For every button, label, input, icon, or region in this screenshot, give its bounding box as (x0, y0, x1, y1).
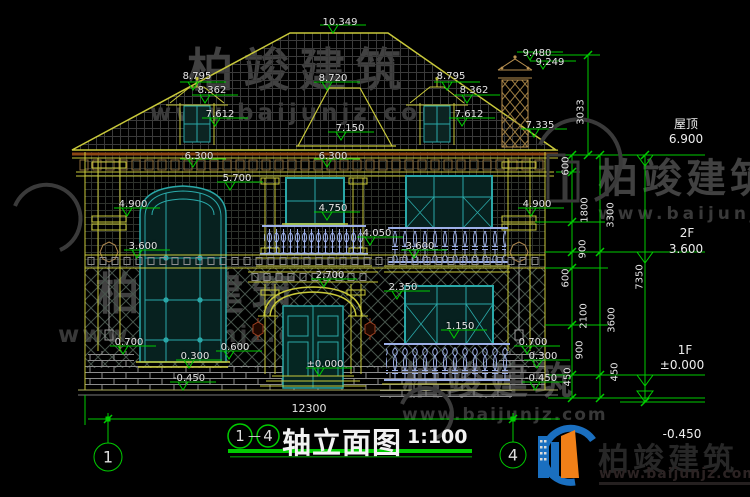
floor-roof-elev: 6.900 (669, 132, 703, 146)
floor-2f-elev: 3.600 (669, 242, 703, 256)
dim-balcony-slab: 4.050 (363, 228, 392, 239)
dim-threshold: ±0.000 (306, 359, 343, 370)
floor-1f-label: 1F (678, 343, 693, 357)
floor-1f-elev: ±0.000 (660, 358, 704, 372)
title-dash: — (248, 429, 261, 444)
dim-ledge-low: 0.600 (221, 342, 250, 353)
floor-roof-label: 屋顶 (674, 115, 698, 132)
drawing-title: 轴立面图 (282, 420, 402, 462)
left-pier-base (88, 351, 134, 390)
dim-dormerL-ridge: 8.795 (183, 71, 212, 82)
dim-sill-left: 0.300 (181, 351, 210, 362)
chain-2100: 2100 (579, 303, 590, 328)
dim-pier-base-right: 0.700 (519, 337, 548, 348)
dim-window-head: 2.350 (389, 282, 418, 293)
chain-450-a: 450 (563, 367, 574, 386)
dim-arch-top: 5.700 (223, 173, 252, 184)
brand-logo-icon (538, 428, 593, 482)
dim-dormerL-eave: 8.362 (198, 85, 227, 96)
dim-ledge-left: 4.900 (119, 199, 148, 210)
axis-bubble-4: 4 (508, 446, 518, 465)
dim-rail-top: 4.750 (319, 203, 348, 214)
chain-900-b: 900 (575, 340, 586, 359)
dim-total-width: 12300 (292, 403, 327, 414)
chain-450-b: 450 (610, 362, 621, 381)
chain-1800: 1800 (580, 197, 591, 222)
dim-center-eave: 7.150 (336, 123, 365, 134)
dim-chimney-cap: 9.249 (536, 57, 565, 68)
axis-bubble-1: 1 (103, 448, 113, 467)
chain-7350: 7350 (635, 264, 646, 289)
window-2f-right (402, 176, 496, 228)
window-2f-center (282, 178, 348, 224)
chain-600-b: 600 (561, 268, 572, 287)
dim-eave-left: 6.300 (185, 151, 214, 162)
chimney (498, 55, 532, 147)
chain-3600: 3600 (607, 307, 618, 332)
window-1f-right (405, 286, 493, 344)
dim-2f-floor-left: 3.600 (129, 241, 158, 252)
brand-url: www.baijunjz.com (599, 466, 750, 485)
chain-600-a: 600 (561, 156, 572, 175)
dim-dormerR-ridge: 8.795 (437, 71, 466, 82)
dim-porch-rail: 1.150 (446, 321, 475, 332)
dim-dormerR-sill: 7.612 (455, 109, 484, 120)
title-axis-1: 1 (235, 427, 245, 445)
chain-3033: 3033 (576, 99, 587, 124)
dim-pier-base-left: 0.700 (115, 337, 144, 348)
chain-900-a: 900 (578, 239, 589, 258)
floor-2f-label: 2F (680, 226, 695, 240)
dim-chimney-base: 7.335 (526, 120, 555, 131)
dim-ground-left: -0.450 (173, 373, 205, 384)
dim-2f-floor-center: 3.600 (406, 241, 435, 252)
drawing-scale: 1:100 (407, 426, 467, 448)
title-axis-4: 4 (263, 427, 273, 445)
arched-stair-window (136, 186, 230, 367)
dim-sill-right: 0.300 (529, 351, 558, 362)
dim-center-hip: 8.720 (319, 73, 348, 84)
dim-canopy: 2.700 (316, 270, 345, 281)
dim-dormerR-eave: 8.362 (460, 85, 489, 96)
dim-eave-center: 6.300 (319, 151, 348, 162)
dim-ground-right: -0.450 (525, 373, 557, 384)
dim-ledge-right: 4.900 (523, 199, 552, 210)
chain-3300: 3300 (606, 202, 617, 227)
cad-elevation-drawing: 柏竣建筑 www.baijunjz.com 柏竣建筑 www.baijunjz.… (0, 0, 750, 497)
dim-dormerL-sill: 7.612 (206, 109, 235, 120)
porch-balustrade (382, 344, 510, 384)
dim-ridge: 10.349 (323, 17, 358, 28)
